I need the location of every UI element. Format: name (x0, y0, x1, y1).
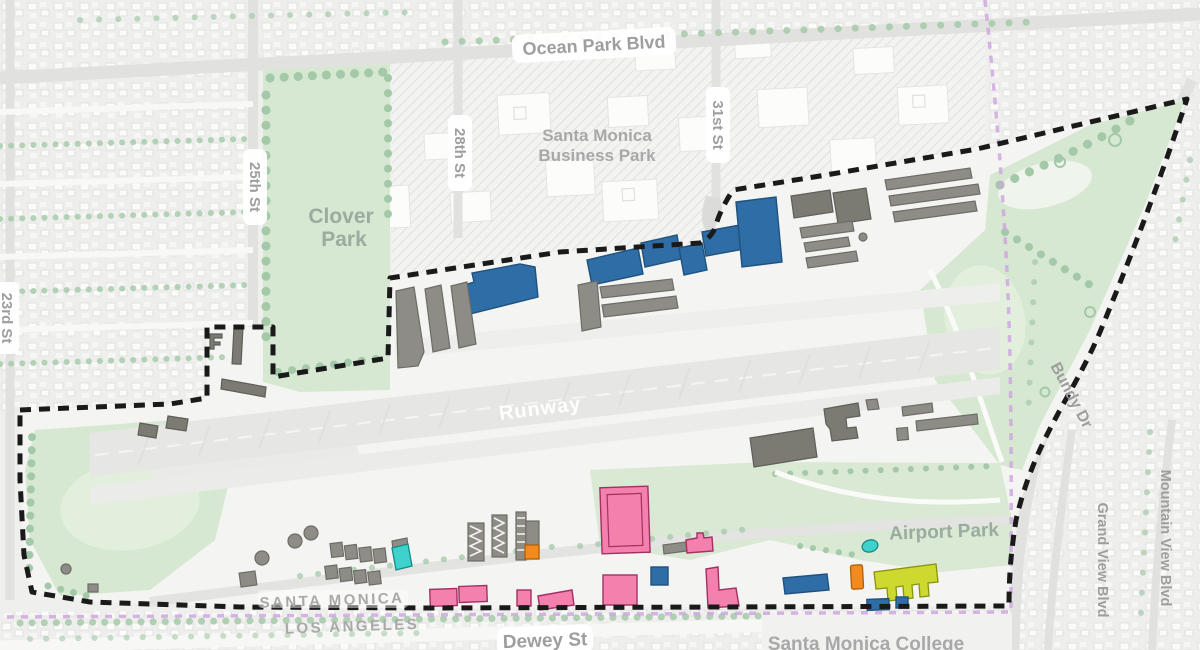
label-28th-st: 28th St (448, 115, 472, 191)
street-label: 23rd St (0, 293, 15, 344)
west-small-building-2 (166, 416, 188, 431)
map-canvas: Ocean Park Blvd 23rd St 25th St 28th St … (0, 0, 1200, 650)
building-blue-row-c (679, 243, 707, 275)
street-label: Mountain View Blvd (1157, 470, 1173, 607)
park-label-line1: Clover (308, 205, 373, 228)
street-label: 28th St (451, 128, 468, 178)
building-pink-large (600, 486, 650, 554)
sawtooth-building-1 (468, 523, 484, 561)
park-label: Airport Park (889, 520, 1000, 545)
label-santa-monica-college: Santa Monica College (768, 634, 964, 650)
label-25th-st: 25th St (243, 149, 267, 225)
building-orange-small (525, 545, 539, 559)
bar-building-notch (232, 329, 243, 364)
building-gray-e-spine (578, 281, 601, 331)
label-mountain-view-blvd: Mountain View Blvd (1157, 470, 1173, 607)
building-gray-dot (859, 233, 867, 241)
tiny-structure (61, 564, 71, 574)
building-pink-row-2 (459, 586, 488, 603)
label-23rd-st: 23rd St (0, 282, 19, 354)
building-blue-east (783, 574, 829, 594)
building-orange-east (850, 565, 863, 590)
tiny-structure-2 (88, 584, 98, 592)
round-structure-1 (255, 551, 269, 565)
label-business-park: Santa Monica Business Park (538, 126, 656, 165)
airport-plan-map: Ocean Park Blvd 23rd St 25th St 28th St … (0, 0, 1200, 650)
building-gray-south-sq (896, 427, 908, 440)
area-label-line2: Business Park (538, 146, 656, 165)
round-structure-3 (304, 526, 318, 540)
label-31st-st: 31st St (706, 87, 730, 163)
building-gray-south-small (866, 399, 879, 410)
sawtooth-building-2 (492, 515, 507, 557)
street-label: 25th St (246, 162, 263, 212)
building-gray-blob-b (833, 188, 871, 224)
label-dewey-st: Dewey St (497, 624, 594, 650)
area-label-line1: Santa Monica (542, 126, 652, 145)
small-gray-building (239, 571, 257, 587)
label-airport-park: Airport Park (889, 520, 1000, 545)
building-blue-tall-hangar (736, 197, 782, 267)
building-blue-small-mid (651, 567, 668, 585)
street-label: 31st St (709, 100, 726, 149)
label-grand-view-blvd: Grand View Blvd (1094, 503, 1110, 618)
round-structure-2 (288, 534, 302, 548)
street-label: Dewey St (502, 629, 588, 650)
park-label-line2: Park (321, 228, 367, 251)
building-pink-row-1 (430, 589, 458, 607)
west-small-building-1 (138, 423, 158, 438)
street-label: Grand View Blvd (1094, 503, 1110, 618)
building-pink-sq-1 (603, 575, 637, 605)
building-pink-row-3 (517, 590, 531, 606)
